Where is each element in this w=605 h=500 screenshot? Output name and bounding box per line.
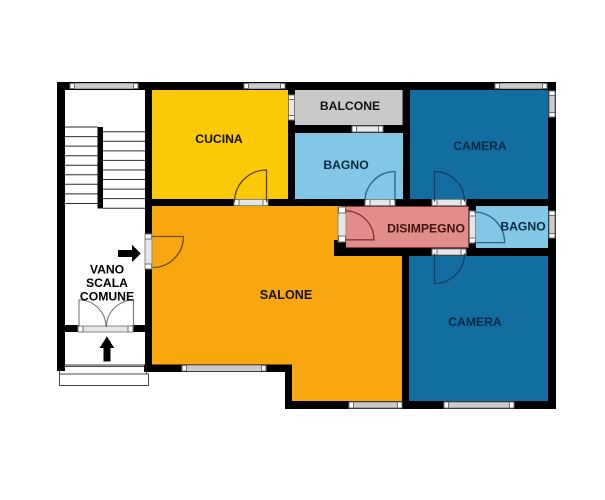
svg-text:BAGNO: BAGNO — [500, 220, 545, 234]
svg-text:DISIMPEGNO: DISIMPEGNO — [387, 222, 465, 236]
svg-text:SCALA: SCALA — [86, 276, 128, 290]
svg-text:CAMERA: CAMERA — [453, 139, 507, 153]
svg-text:SALONE: SALONE — [260, 288, 312, 302]
svg-text:BALCONE: BALCONE — [320, 99, 380, 113]
svg-text:CAMERA: CAMERA — [448, 315, 502, 329]
svg-text:CUCINA: CUCINA — [195, 132, 243, 146]
svg-text:VANO: VANO — [90, 263, 124, 277]
svg-text:COMUNE: COMUNE — [80, 290, 134, 304]
svg-text:BAGNO: BAGNO — [323, 158, 368, 172]
